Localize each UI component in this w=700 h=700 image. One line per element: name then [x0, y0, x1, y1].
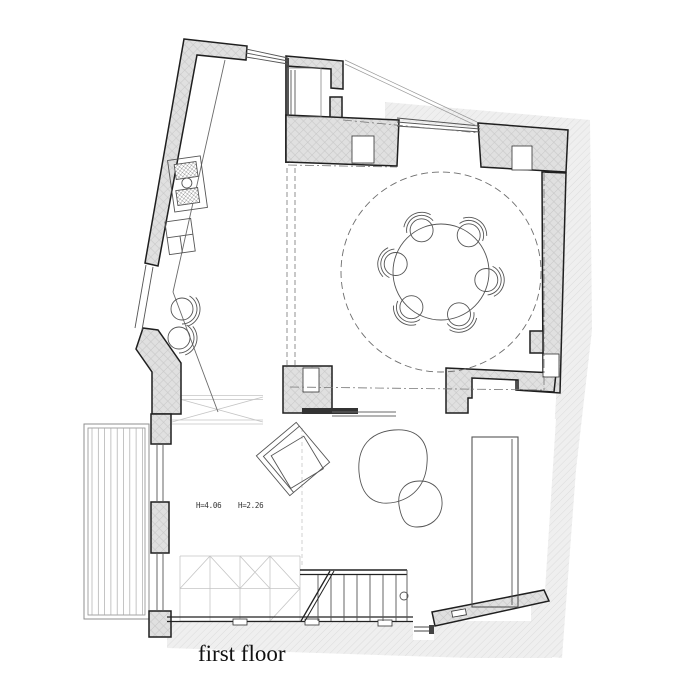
- entry-floor: [288, 68, 321, 117]
- niche-pier-a: [303, 368, 319, 392]
- window-sill-2: [305, 619, 319, 625]
- floor-plan-drawing: H=4.06 H=2.26 first floor: [0, 0, 700, 700]
- niche-right-wall: [543, 354, 559, 377]
- right-wall-bump: [530, 331, 543, 353]
- floor-plan-page: H=4.06 H=2.26 first floor: [0, 0, 700, 700]
- deck-floor: [84, 424, 149, 619]
- sideboard: [302, 408, 396, 416]
- height-label-left: H=4.06: [196, 501, 222, 510]
- height-label-right: H=2.26: [238, 501, 264, 510]
- living-left-pier-3: [149, 611, 171, 637]
- central-wall-mass: [286, 115, 399, 166]
- niche-central: [352, 136, 374, 163]
- living-left-pier-2: [151, 502, 169, 553]
- living-floor: [170, 414, 556, 621]
- window-sill-3: [378, 620, 392, 626]
- window-sill-1: [233, 619, 247, 625]
- floor-title: first floor: [198, 641, 286, 666]
- entry-pier: [330, 97, 342, 118]
- living-left-pier-1: [151, 414, 171, 444]
- niche-top-right: [512, 146, 532, 170]
